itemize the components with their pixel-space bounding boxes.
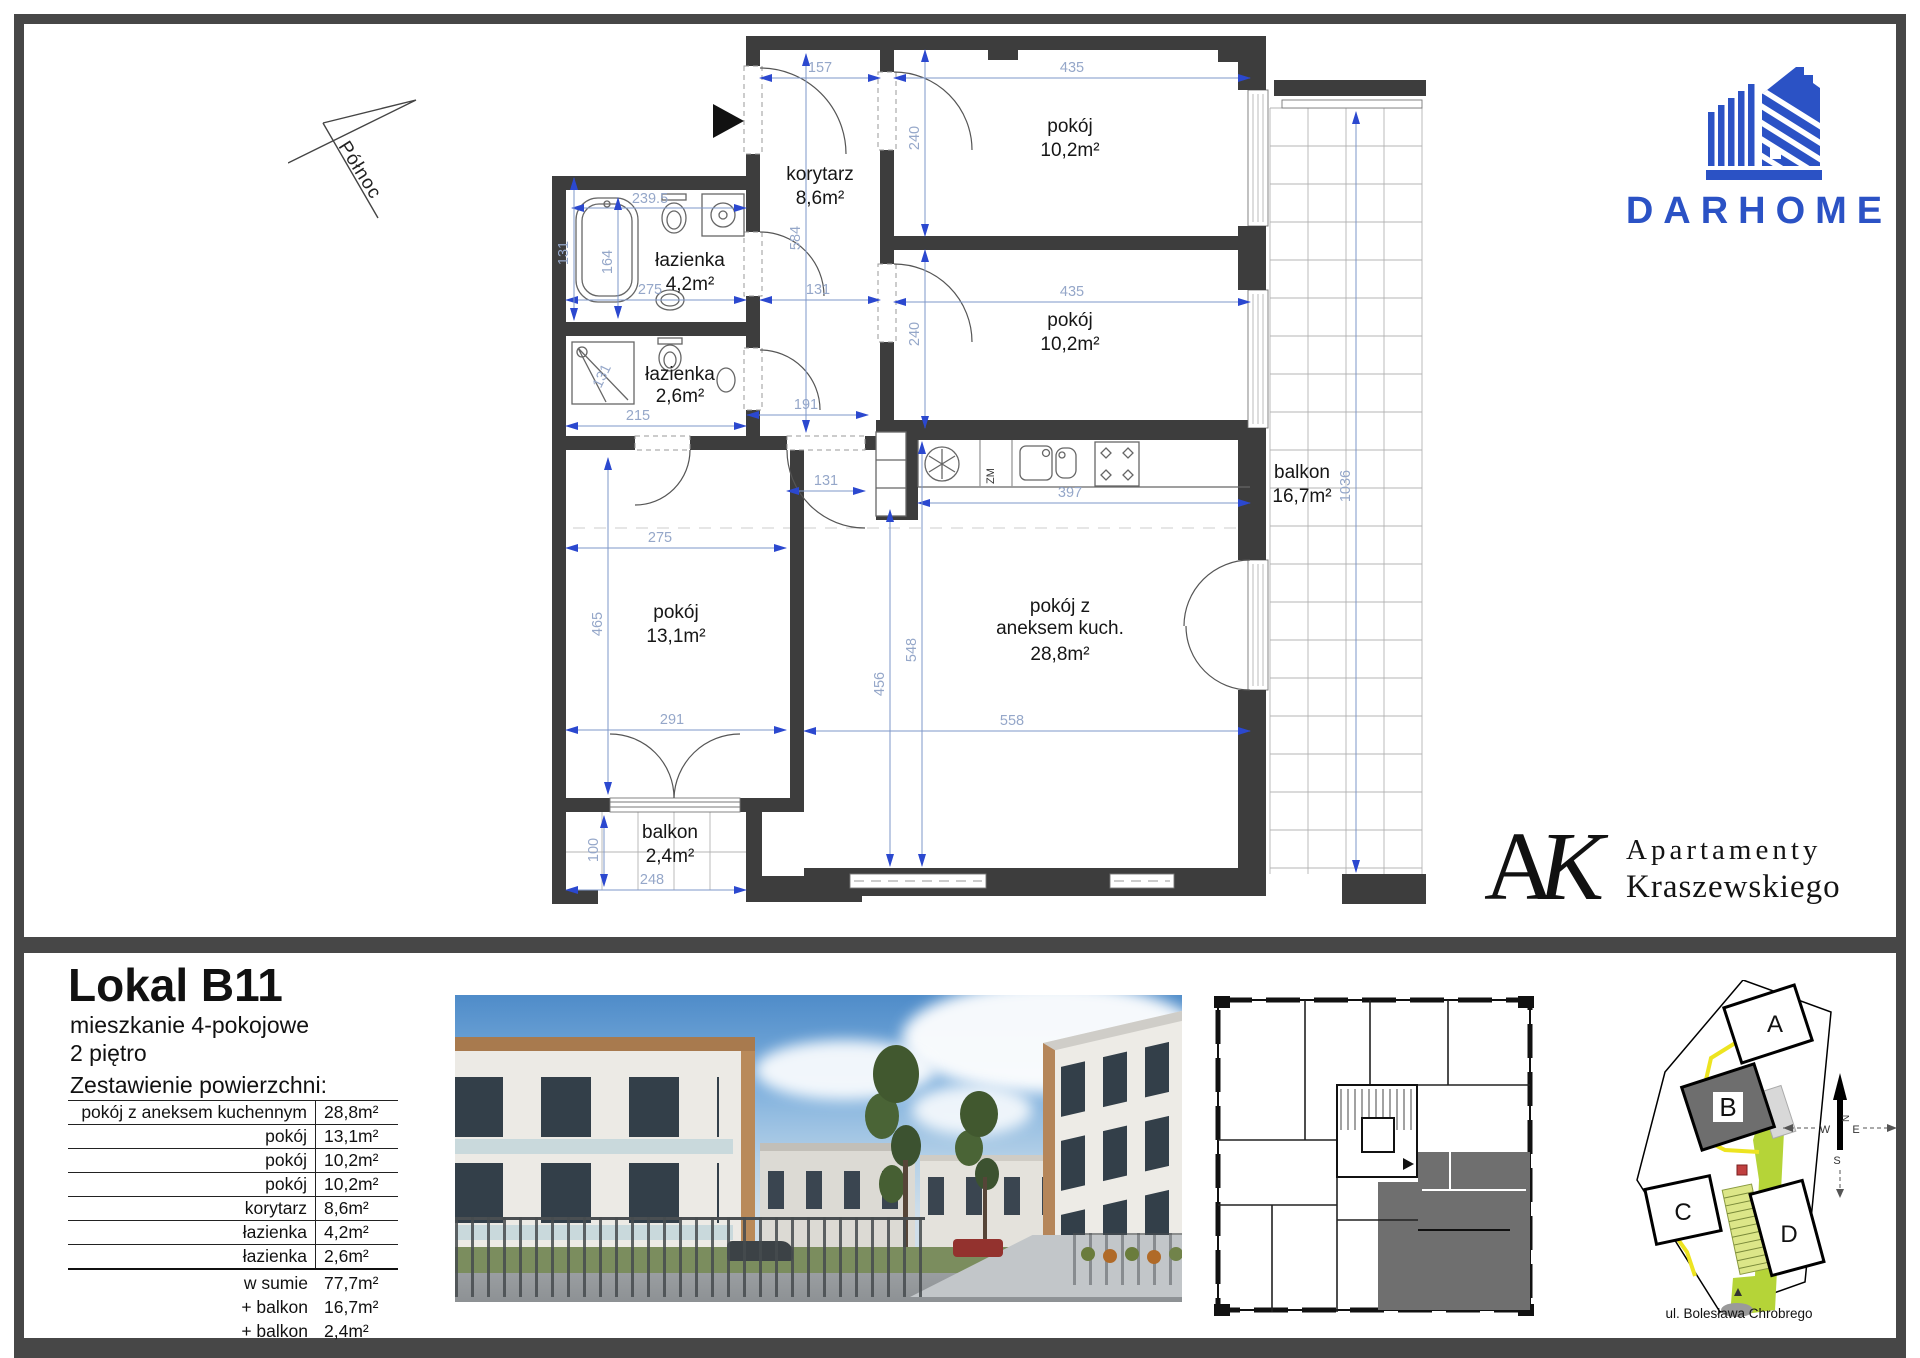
summary-row-balcony-2: + balkon2,4m² xyxy=(68,1318,398,1342)
table-row: pokój10,2m² xyxy=(68,1149,398,1173)
dim-164: 164 xyxy=(600,250,616,274)
building-b-label: B xyxy=(1719,1092,1736,1122)
tree xyxy=(873,1045,919,1103)
windows-row xyxy=(455,1077,719,1137)
dim-456: 456 xyxy=(872,672,888,696)
kitchen-sink xyxy=(1020,446,1052,480)
label-lazienka-2: łazienka xyxy=(645,364,715,385)
north-arrow: Północ xyxy=(288,78,438,228)
label-pokoj-3: pokój xyxy=(653,602,698,623)
svg-text:4,2m²: 4,2m² xyxy=(666,274,715,295)
unit-title: Lokal B11 xyxy=(68,958,283,1012)
summary-row-balcony-1: + balkon16,7m² xyxy=(68,1294,398,1318)
darhome-wordmark: DARHOME xyxy=(1625,190,1893,233)
fence xyxy=(455,1217,925,1297)
windows xyxy=(850,90,1422,888)
table-row: korytarz8,6m² xyxy=(68,1197,398,1221)
label-pokoj-2: pokój xyxy=(1047,310,1092,331)
dim-131b: 131 xyxy=(806,282,830,298)
dim-240b: 240 xyxy=(907,322,923,346)
dim-435a: 435 xyxy=(1060,60,1084,76)
dim-131d: 131 xyxy=(814,473,838,489)
svg-text:2,4m²: 2,4m² xyxy=(646,846,695,867)
svg-text:2,6m²: 2,6m² xyxy=(656,386,705,407)
area-table-title: Zestawienie powierzchni: xyxy=(70,1072,327,1099)
label-dishwasher-zm: ZM xyxy=(985,468,997,484)
label-lazienka-1: łazienka xyxy=(655,250,725,271)
bushes xyxy=(1081,1247,1095,1261)
marker-red xyxy=(1737,1165,1747,1175)
compass-w: W xyxy=(1820,1124,1831,1136)
floor-overview-plan xyxy=(1210,990,1540,1322)
ak-wordmark: Apartamenty Kraszewskiego xyxy=(1626,834,1841,906)
compass-e: E xyxy=(1852,1124,1859,1136)
building-a-label: A xyxy=(1767,1011,1783,1038)
dim-157: 157 xyxy=(808,60,832,76)
label-korytarz: korytarz xyxy=(786,164,854,185)
dim-558: 558 xyxy=(1000,713,1024,729)
building-c-label: C xyxy=(1674,1199,1691,1226)
development-photo xyxy=(455,995,1182,1302)
compass-n: N xyxy=(1841,1115,1852,1122)
dim-240a: 240 xyxy=(907,126,923,150)
svg-text:13,1m²: 13,1m² xyxy=(646,626,705,647)
table-row: łazienka2,6m² xyxy=(68,1245,398,1270)
svg-text:10,2m²: 10,2m² xyxy=(1040,140,1099,161)
windows-row xyxy=(1061,1040,1179,1117)
street-label: ul. Bolesława Chrobrego xyxy=(1665,1306,1812,1321)
dim-548: 548 xyxy=(904,638,920,662)
label-balkon-2: balkon xyxy=(642,822,698,843)
stove xyxy=(1095,442,1139,486)
house-window xyxy=(1770,148,1781,159)
dim-584: 584 xyxy=(788,226,804,250)
windows-row xyxy=(768,1171,906,1209)
windows-row xyxy=(455,1163,719,1223)
dim-291: 291 xyxy=(660,712,684,728)
dim-435b: 435 xyxy=(1060,284,1084,300)
windows-row xyxy=(1061,1114,1179,1191)
dim-275a: 275 xyxy=(638,282,662,298)
label-pokoj-1: pokój xyxy=(1047,116,1092,137)
tree xyxy=(960,1091,998,1137)
dim-465: 465 xyxy=(590,612,606,636)
compass-s: S xyxy=(1833,1155,1840,1167)
dim-397: 397 xyxy=(1058,485,1082,501)
flyer-page: Północ xyxy=(0,0,1920,1358)
dim-1036: 1036 xyxy=(1338,470,1354,502)
svg-text:28,8m²: 28,8m² xyxy=(1030,644,1089,665)
ak-monogram: AK xyxy=(1484,818,1604,916)
washbasin-2 xyxy=(717,368,735,392)
entrance-arrow xyxy=(713,104,744,138)
unit-subtitle-type: mieszkanie 4-pokojowe xyxy=(70,1012,309,1039)
svg-text:16,7m²: 16,7m² xyxy=(1272,486,1331,507)
shaft xyxy=(876,432,906,516)
dim-100: 100 xyxy=(586,838,602,862)
site-plan: A B C D N W E S ul. Bo xyxy=(1625,980,1915,1348)
area-table: pokój z aneksem kuchennym28,8m² pokój13,… xyxy=(68,1100,398,1342)
dim-248: 248 xyxy=(640,872,664,888)
north-label: Północ xyxy=(334,138,386,203)
unit-subtitle-floor: 2 piętro xyxy=(70,1040,147,1067)
dim-131a: 131 xyxy=(556,241,572,265)
kitchen-counter xyxy=(918,440,1250,487)
dim-215: 215 xyxy=(626,408,650,424)
dim-239-5: 239.5 xyxy=(632,191,668,207)
table-row: pokój13,1m² xyxy=(68,1125,398,1149)
red-car xyxy=(953,1239,1003,1257)
svg-text:aneksem kuch.: aneksem kuch. xyxy=(996,618,1124,639)
darhome-logo-icon xyxy=(1700,58,1835,188)
glass-balustrade xyxy=(455,1139,733,1154)
building-d-label: D xyxy=(1780,1221,1797,1248)
summary-row-total: w sumie77,7m² xyxy=(68,1270,398,1294)
washing-machine xyxy=(702,194,744,236)
floorplan: 157 435 239.5 275 131 215 191 131 397 43… xyxy=(550,28,1430,943)
dim-131c: 131 xyxy=(590,362,615,391)
dim-275b: 275 xyxy=(648,530,672,546)
table-row: pokój10,2m² xyxy=(68,1173,398,1197)
table-row: łazienka4,2m² xyxy=(68,1221,398,1245)
label-salon: pokój z xyxy=(1030,596,1090,617)
table-row: pokój z aneksem kuchennym28,8m² xyxy=(68,1100,398,1125)
label-balkon-1: balkon xyxy=(1274,462,1330,483)
svg-text:8,6m²: 8,6m² xyxy=(796,188,845,209)
room-labels: korytarz 8,6m² pokój 10,2m² pokój 10,2m²… xyxy=(642,116,1332,867)
svg-text:10,2m²: 10,2m² xyxy=(1040,334,1099,355)
